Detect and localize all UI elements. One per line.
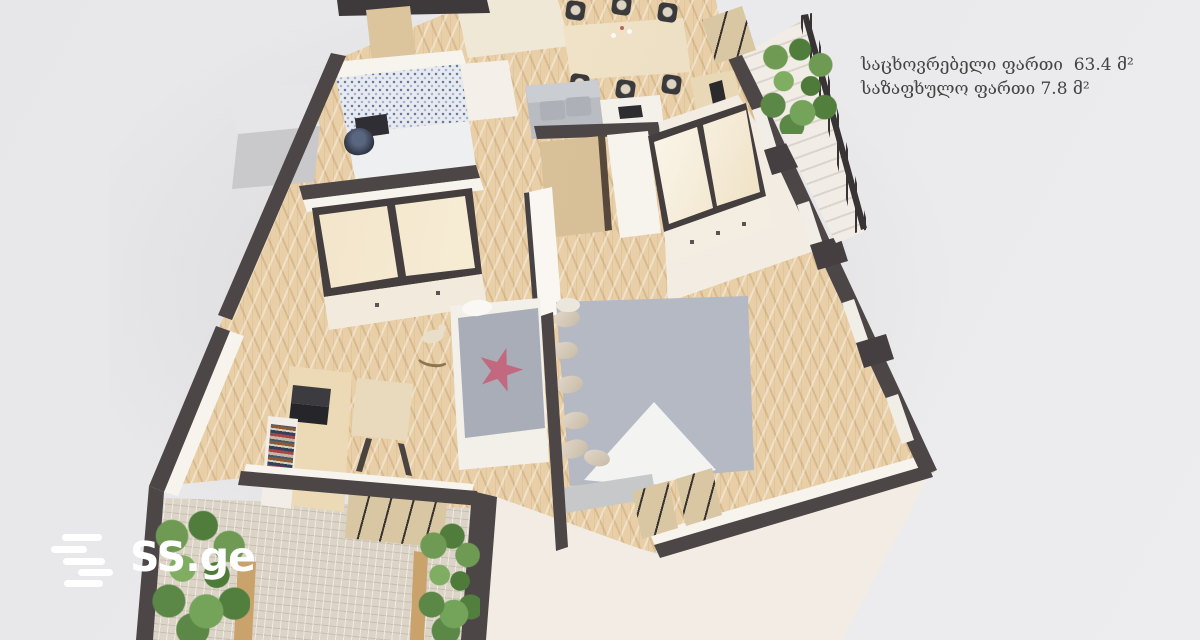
- bed-pillow: [556, 298, 580, 312]
- speed-lines-icon: [62, 534, 102, 541]
- drawer-knob: [742, 222, 746, 226]
- dining-chair: [657, 2, 678, 23]
- sofa-cushion: [565, 96, 591, 117]
- brand-name: SS.ge: [130, 533, 255, 581]
- dining-chair: [615, 79, 636, 100]
- balcony-plant: [418, 522, 480, 640]
- balcony-plant: [755, 38, 837, 134]
- speed-lines-icon: [78, 569, 113, 576]
- floor-plan-render: SS.ge საცხოვრებელი ფართი 63.4 მ² საზაფხუ…: [0, 0, 1200, 640]
- sofa-cushion: [539, 100, 565, 121]
- speed-lines-icon: [51, 546, 87, 553]
- living-area-label: საცხოვრებელი ფართი 63.4 მ²: [861, 53, 1134, 77]
- speed-lines-icon: [64, 580, 103, 587]
- speed-lines-icon: [63, 558, 105, 565]
- dining-chair: [611, 0, 632, 16]
- area-info: საცხოვრებელი ფართი 63.4 მ² საზაფხულო ფარ…: [861, 5, 883, 101]
- summer-area-label: საზაფხულო ფართი 7.8 მ²: [861, 77, 1090, 101]
- dining-chair: [565, 0, 586, 21]
- dining-chair: [661, 74, 682, 95]
- table-flower: [620, 26, 624, 30]
- drawer-knob: [690, 240, 694, 244]
- drawer-knob: [436, 291, 440, 295]
- drawer-knob: [375, 303, 379, 307]
- rocking-horse-head: [438, 324, 446, 333]
- drawer-knob: [716, 231, 720, 235]
- table-glass: [627, 29, 632, 34]
- table-glass: [611, 33, 616, 38]
